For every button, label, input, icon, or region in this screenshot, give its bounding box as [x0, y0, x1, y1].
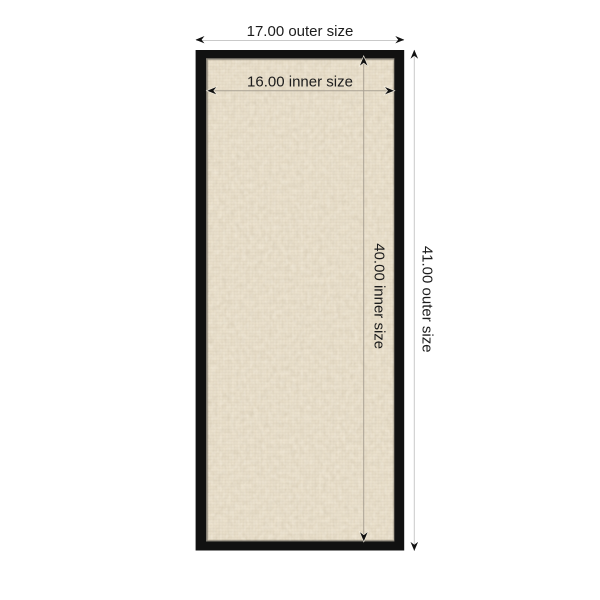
- svg-text:40.00 inner size: 40.00 inner size: [370, 243, 387, 349]
- svg-text:41.00 outer size: 41.00 outer size: [418, 246, 435, 353]
- svg-text:17.00 outer size: 17.00 outer size: [247, 23, 354, 40]
- svg-text:16.00 inner size: 16.00 inner size: [247, 74, 353, 91]
